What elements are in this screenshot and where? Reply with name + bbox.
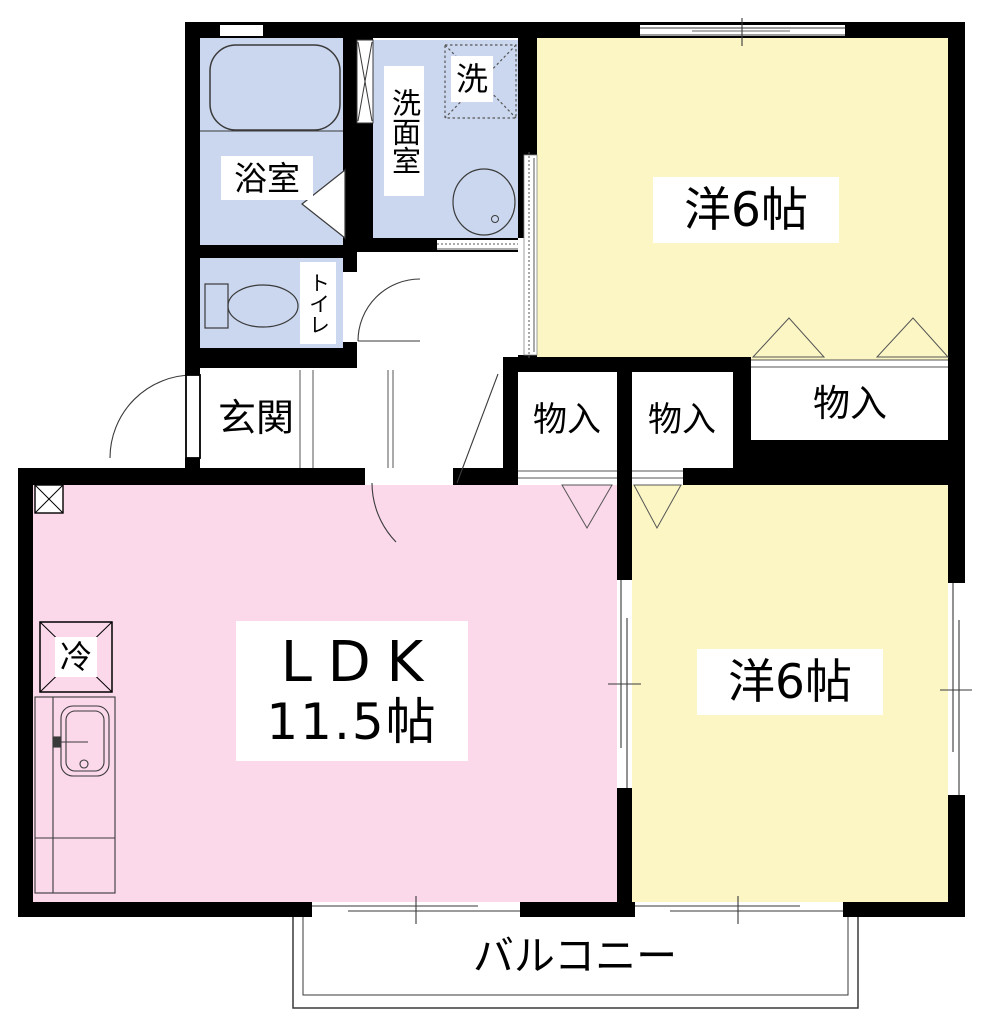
toilet-door-arc (358, 279, 420, 341)
closet2-label: 物入 (638, 400, 726, 440)
pipe-space (35, 485, 63, 513)
wall-band-left (18, 468, 365, 485)
wall-band-mid (453, 468, 518, 485)
wall-bath-toilet (185, 245, 357, 258)
wall-washroom-right (518, 155, 524, 238)
wall-left-lower (18, 468, 33, 917)
wall-closet-top (518, 357, 751, 372)
wall-band-right (683, 468, 751, 485)
refrigerator-label: 冷 (55, 637, 97, 677)
wall-closet1-left (503, 357, 518, 485)
ldk-label-line2: 11.5帖 (266, 697, 437, 747)
closet1-label: 物入 (523, 400, 611, 440)
floorplan-drawing (0, 0, 988, 1024)
wall-left-upper (185, 38, 200, 375)
bedroom-right-label: 洋6帖 (697, 649, 883, 715)
wall-top (185, 22, 965, 38)
entrance-door-arc (110, 375, 193, 458)
wall-closet2-closet3 (733, 357, 751, 485)
toilet-label: トイレ (300, 262, 336, 344)
bedroom-top-sliding-door (524, 155, 537, 355)
entrance-label: 玄関 (208, 394, 304, 442)
bathroom-label: 浴室 (221, 156, 313, 200)
bedroom-balcony-window-opening (635, 902, 843, 917)
wall-closet3-bottom (751, 440, 948, 485)
bedroom-right-window-opening (948, 583, 965, 795)
entrance-step-lines (300, 370, 393, 468)
ldk-label: LDK 11.5帖 (236, 621, 468, 761)
wall-toilet-bottom (185, 348, 357, 368)
washing-machine-label: 洗 (451, 56, 493, 102)
floorplan-page: 浴室 洗面室 洗 トイレ 玄関 洋6帖 物入 物入 物入 LDK 11.5帖 洋… (0, 0, 988, 1024)
ldk-label-line1: LDK (265, 635, 439, 691)
ldk-door-leaf (457, 374, 498, 483)
bathroom-vent-opening (220, 25, 263, 36)
balcony-label: バルコニー (425, 930, 725, 982)
entrance-door-leaf (186, 375, 200, 458)
bedroom-top-label: 洋6帖 (653, 177, 839, 243)
kitchen-faucet (53, 737, 60, 747)
washroom-label: 洗面室 (384, 66, 424, 196)
wall-hall-bedroom-upper (518, 38, 537, 155)
closet3-label: 物入 (804, 382, 896, 424)
toilet-door-opening (343, 272, 357, 342)
